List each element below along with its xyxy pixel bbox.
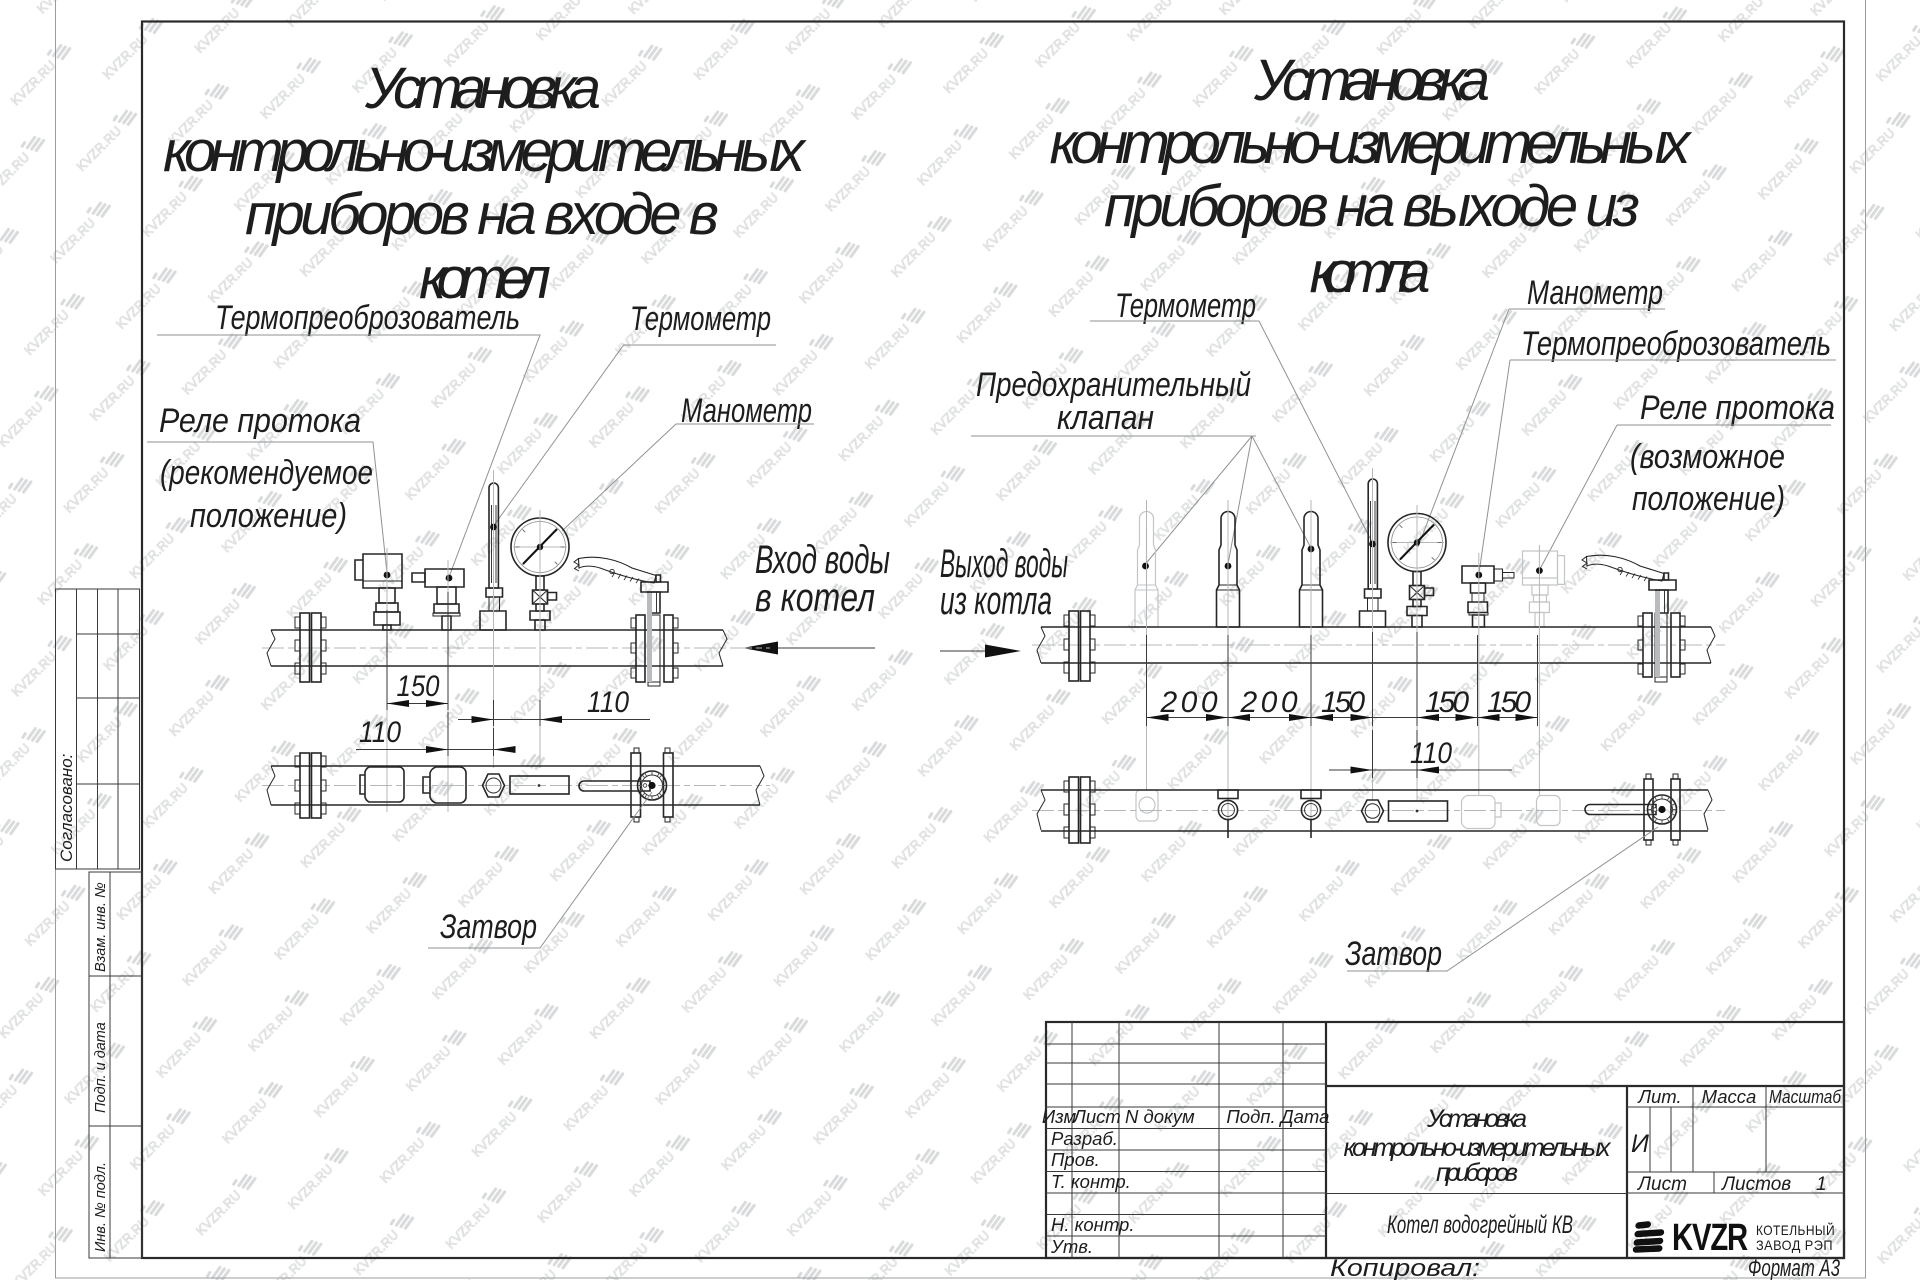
svg-text:Термометр: Термометр bbox=[1115, 287, 1256, 325]
svg-text:Инв. № подл.: Инв. № подл. bbox=[93, 1162, 109, 1252]
svg-text:Затвор: Затвор bbox=[440, 908, 537, 946]
svg-text:150: 150 bbox=[1487, 686, 1531, 719]
svg-text:Формат А3: Формат А3 bbox=[1748, 1255, 1840, 1280]
svg-text:(рекомендуемое: (рекомендуемое bbox=[160, 454, 373, 492]
svg-text:положение): положение) bbox=[1632, 480, 1785, 518]
svg-text:Масса: Масса bbox=[1702, 1086, 1757, 1107]
svg-text:клапан: клапан bbox=[1057, 399, 1154, 437]
svg-text:Разраб.: Разраб. bbox=[1051, 1128, 1118, 1149]
svg-text:Реле протока: Реле протока bbox=[1640, 389, 1835, 427]
svg-text:150: 150 bbox=[397, 670, 440, 703]
svg-text:Котел водогрейный КВ: Котел водогрейный КВ bbox=[1387, 1211, 1573, 1239]
svg-text:приборов на выходе из: приборов на выходе из bbox=[1104, 174, 1640, 239]
svg-text:контрольно-измерительных: контрольно-измерительных bbox=[163, 119, 807, 184]
svg-text:контрольно-измерительных: контрольно-измерительных bbox=[1050, 111, 1693, 176]
svg-text:котла: котла bbox=[1310, 240, 1431, 305]
svg-text:N докум: N докум bbox=[1125, 1106, 1195, 1127]
svg-text:1: 1 bbox=[1816, 1174, 1827, 1195]
svg-text:Установка: Установка bbox=[364, 56, 601, 121]
svg-text:Согласовано:: Согласовано: bbox=[57, 753, 76, 862]
svg-text:положение): положение) bbox=[190, 497, 347, 535]
svg-text:Термометр: Термометр bbox=[630, 300, 771, 338]
svg-text:110: 110 bbox=[359, 716, 401, 749]
svg-text:из котла: из котла bbox=[940, 579, 1052, 623]
svg-text:Лист: Лист bbox=[1636, 1174, 1687, 1195]
svg-text:Пров.: Пров. bbox=[1051, 1149, 1100, 1170]
svg-text:ЗАВОД РЭП: ЗАВОД РЭП bbox=[1756, 1237, 1833, 1253]
svg-text:150: 150 bbox=[1425, 686, 1469, 719]
svg-text:Масштаб: Масштаб bbox=[1769, 1086, 1841, 1107]
svg-text:200: 200 bbox=[1240, 686, 1298, 719]
svg-text:150: 150 bbox=[1321, 686, 1365, 719]
svg-text:Лист: Лист bbox=[1072, 1106, 1121, 1127]
svg-text:110: 110 bbox=[587, 686, 629, 719]
svg-text:Дата: Дата bbox=[1279, 1106, 1330, 1127]
svg-text:Листов: Листов bbox=[1720, 1174, 1791, 1195]
svg-text:(возможное: (возможное bbox=[1630, 438, 1785, 476]
svg-text:Термопреоброзователь: Термопреоброзователь bbox=[1521, 325, 1831, 363]
svg-text:контрольно-измерительных: контрольно-измерительных bbox=[1344, 1134, 1613, 1162]
svg-text:приборов: приборов bbox=[1436, 1159, 1518, 1187]
svg-text:приборов на входе в: приборов на входе в bbox=[245, 182, 719, 247]
svg-text:KVZR: KVZR bbox=[1672, 1217, 1748, 1259]
svg-text:Установка: Установка bbox=[1253, 48, 1490, 113]
svg-text:Лит.: Лит. bbox=[1637, 1086, 1681, 1107]
svg-text:Манометр: Манометр bbox=[1527, 274, 1663, 312]
svg-text:Термопреоброзователь: Термопреоброзователь bbox=[215, 299, 520, 337]
svg-text:в котел: в котел bbox=[755, 576, 875, 620]
svg-text:И: И bbox=[1631, 1130, 1649, 1158]
svg-text:Т. контр.: Т. контр. bbox=[1051, 1171, 1131, 1192]
svg-text:КОТЕЛЬНЫЙ: КОТЕЛЬНЫЙ bbox=[1756, 1221, 1835, 1238]
svg-text:Подп. и дата: Подп. и дата bbox=[93, 1022, 109, 1113]
svg-text:Реле протока: Реле протока bbox=[159, 402, 361, 440]
svg-text:Н. контр.: Н. контр. bbox=[1051, 1214, 1134, 1235]
svg-text:110: 110 bbox=[1410, 737, 1452, 770]
svg-text:200: 200 bbox=[1160, 686, 1218, 719]
svg-text:Взам. инв. №: Взам. инв. № bbox=[93, 882, 109, 972]
svg-text:Установка: Установка bbox=[1426, 1105, 1527, 1133]
svg-text:Утв.: Утв. bbox=[1050, 1236, 1093, 1257]
svg-text:Подп.: Подп. bbox=[1226, 1106, 1275, 1127]
svg-text:Копировал:: Копировал: bbox=[1330, 1255, 1480, 1280]
svg-text:Затвор: Затвор bbox=[1345, 935, 1442, 973]
svg-text:Изм: Изм bbox=[1042, 1106, 1077, 1127]
